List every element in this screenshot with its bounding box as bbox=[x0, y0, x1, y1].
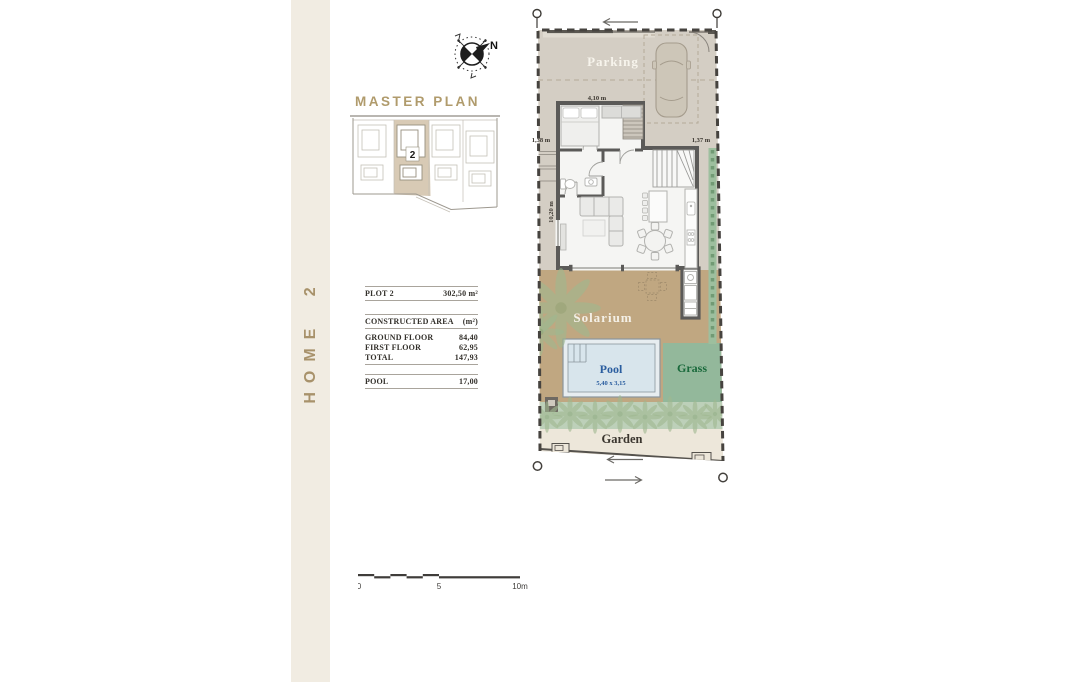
ground-floor-label: GROUND FLOOR bbox=[365, 333, 433, 342]
scale-tick-10: 10m bbox=[512, 582, 528, 591]
street-arrow-bottom-right bbox=[605, 477, 642, 484]
table-row-ground-floor: GROUND FLOOR 84,40 bbox=[365, 332, 478, 342]
table-row-first-floor: FIRST FLOOR 62,95 bbox=[365, 342, 478, 352]
parking-label: Parking bbox=[587, 54, 639, 69]
home-title-strip: HOME 2 bbox=[291, 0, 330, 682]
scale-tick-0: 0 bbox=[358, 582, 362, 591]
plot-label: PLOT 2 bbox=[365, 289, 394, 298]
utility-appliances bbox=[685, 272, 697, 316]
area-table: PLOT 2 302,50 m² CONSTRUCTED AREA (m²) G… bbox=[365, 286, 478, 389]
garden-gate-right bbox=[692, 453, 711, 463]
staircase bbox=[653, 150, 694, 187]
compass-north-label: N bbox=[490, 40, 498, 52]
dim-side-length: 10,20 m bbox=[548, 201, 555, 223]
tv-unit bbox=[561, 224, 567, 250]
pool-row-label: POOL bbox=[365, 377, 388, 386]
table-row-constructed-header: CONSTRUCTED AREA (m²) bbox=[365, 315, 478, 328]
kitchen-counter bbox=[685, 189, 697, 268]
wardrobe bbox=[602, 106, 641, 118]
bed bbox=[561, 106, 599, 146]
plot-number-label: 2 bbox=[410, 150, 416, 161]
scale-tick-5: 5 bbox=[437, 582, 442, 591]
toilet bbox=[561, 179, 576, 189]
garden-gate-left bbox=[552, 444, 569, 453]
car bbox=[653, 43, 691, 117]
dim-left-setback: 1,38 m bbox=[532, 137, 551, 144]
street-arrow-top bbox=[604, 19, 639, 26]
table-row-total: TOTAL 147,93 bbox=[365, 352, 478, 362]
plan-sheet: HOME 2 N MASTER PLAN bbox=[0, 0, 1070, 682]
constructed-unit: (m²) bbox=[463, 317, 478, 326]
master-plan-map: 2 bbox=[350, 110, 500, 228]
total-label: TOTAL bbox=[365, 353, 393, 362]
dim-bedroom-width: 4,10 m bbox=[588, 95, 607, 102]
floor-plan: Parking Solarium Pool 5,40 x 3,15 Grass … bbox=[525, 0, 737, 500]
master-plan-heading: MASTER PLAN bbox=[355, 94, 480, 109]
ground-floor-value: 84,40 bbox=[459, 333, 478, 342]
pool-row-value: 17,00 bbox=[459, 377, 478, 386]
boundary-marker-right bbox=[719, 473, 727, 481]
grass-label: Grass bbox=[677, 361, 707, 375]
dim-right-setback: 1,37 m bbox=[692, 137, 711, 144]
plot-value: 302,50 m² bbox=[443, 289, 478, 298]
rug bbox=[583, 220, 605, 236]
pool-size-label: 5,40 x 3,15 bbox=[596, 380, 626, 387]
bathroom-sink bbox=[585, 178, 597, 186]
garden-label: Garden bbox=[602, 432, 643, 446]
survey-pin-left bbox=[533, 10, 541, 29]
home-title: HOME 2 bbox=[302, 278, 320, 403]
grass-area bbox=[663, 343, 725, 407]
compass-icon: N bbox=[445, 22, 503, 82]
table-row-plot: PLOT 2 302,50 m² bbox=[365, 287, 478, 300]
total-value: 147,93 bbox=[455, 353, 478, 362]
first-floor-label: FIRST FLOOR bbox=[365, 343, 421, 352]
boundary-marker-left bbox=[533, 462, 541, 470]
scale-bar: 0 5 10m bbox=[358, 571, 538, 595]
constructed-label: CONSTRUCTED AREA bbox=[365, 317, 454, 326]
pool-label: Pool bbox=[600, 362, 623, 376]
table-row-pool: POOL 17,00 bbox=[365, 375, 478, 388]
first-floor-value: 62,95 bbox=[459, 343, 478, 352]
street-arrow-bottom-left bbox=[608, 456, 644, 463]
survey-pin-right bbox=[713, 10, 721, 29]
solarium-label: Solarium bbox=[573, 310, 632, 325]
